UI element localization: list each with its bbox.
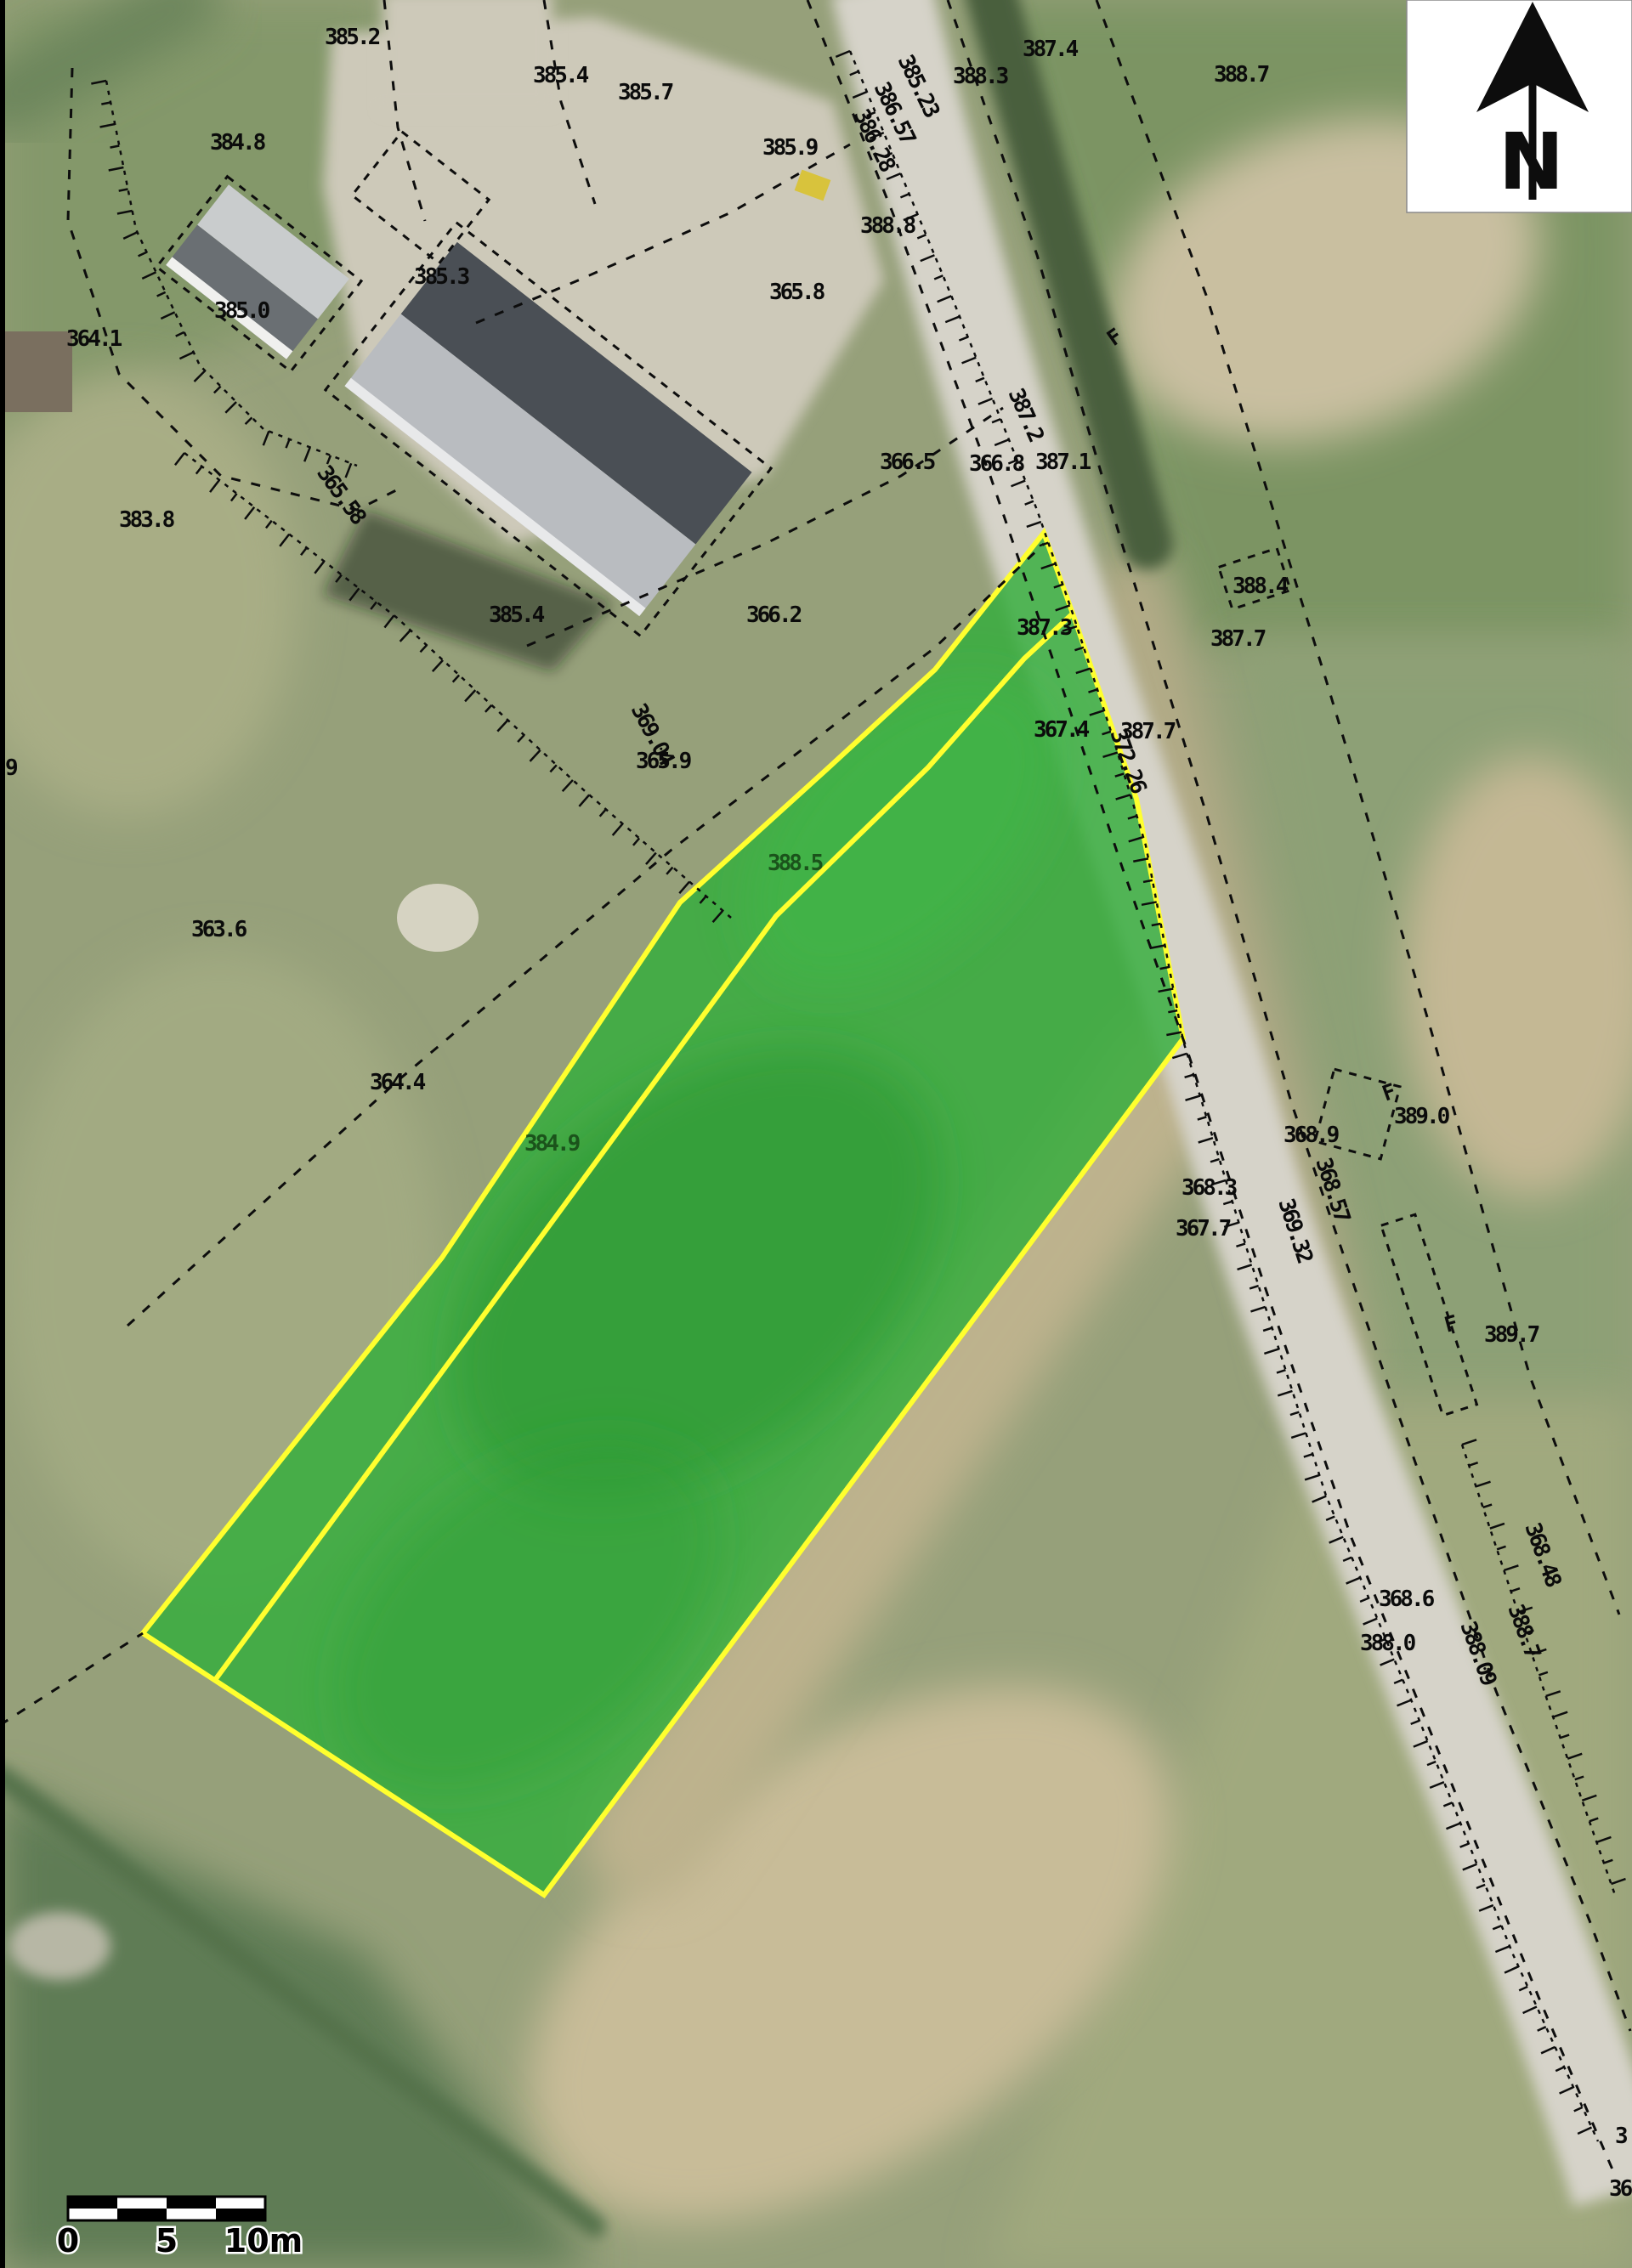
spot-height-label: 385.9	[762, 135, 818, 161]
spot-height-label: 367.7	[1176, 1216, 1231, 1241]
spot-height-label: 388.5	[768, 851, 823, 876]
spot-height-label: 387.7	[1210, 626, 1266, 652]
spot-height-label: 368.6	[1379, 1586, 1435, 1612]
spot-height-label: 366.2	[746, 602, 802, 628]
scale-bar-segment	[216, 2197, 265, 2209]
scale-bar-segment	[117, 2197, 167, 2209]
spot-height-label: 365.8	[769, 280, 825, 305]
scale-bar-label: 0	[57, 2222, 79, 2260]
small-outbuilding	[0, 331, 72, 412]
aerial-survey-map: 385.2385.4385.7384.8385.9388.3387.4388.7…	[0, 0, 1632, 2268]
scale-bar-segment	[68, 2209, 117, 2220]
scale-bar-label: 5	[156, 2222, 178, 2260]
spot-height-label: 389.7	[1484, 1322, 1539, 1348]
spot-height-label: 364.1	[66, 326, 122, 352]
photo-patch	[382, 0, 552, 110]
photo-patch	[8, 1912, 110, 1980]
scale-bar-segment	[216, 2209, 265, 2220]
spot-height-label: 384.8	[210, 130, 266, 156]
spot-height-label: 366.8	[969, 451, 1025, 477]
spot-height-label: 389.0	[1394, 1104, 1450, 1129]
spot-height-label: 9	[5, 755, 17, 781]
spot-height-label: 363.6	[191, 917, 247, 942]
spot-height-label: 388.4	[1232, 574, 1289, 599]
spot-height-label: 385.4	[489, 602, 545, 628]
scale-bar-segment	[68, 2197, 117, 2209]
spot-height-label: 385.3	[414, 264, 469, 290]
spot-height-label: 366.5	[880, 450, 935, 475]
spot-height-label: 364.4	[370, 1070, 426, 1095]
scale-bar-segment	[117, 2209, 167, 2220]
spot-height-label: 36	[1609, 2176, 1632, 2202]
spot-height-label: 387.4	[1023, 37, 1079, 62]
scale-bar-segment	[167, 2197, 216, 2209]
scale-bar-label: 10m	[224, 2222, 303, 2260]
spot-height-label: 368.3	[1181, 1175, 1237, 1201]
spot-height-label: 385.7	[618, 80, 673, 105]
spot-height-label: 383.8	[119, 507, 175, 533]
spot-height-label: 388.3	[953, 64, 1008, 89]
spot-height-label: 388.7	[1214, 62, 1269, 88]
spot-height-label: 367.4	[1034, 717, 1090, 743]
spot-height-label: 385.2	[325, 25, 380, 50]
spot-height-label: 3	[1615, 2124, 1627, 2149]
spot-height-label: 387.3	[1017, 615, 1072, 641]
map-canvas: 385.2385.4385.7384.8385.9388.3387.4388.7…	[0, 0, 1632, 2268]
north-arrow: N	[1407, 0, 1632, 212]
spot-height-label: 385.0	[214, 298, 270, 324]
spot-height-label: 384.9	[524, 1131, 580, 1157]
spot-height-label: 387.1	[1035, 450, 1091, 475]
spot-height-label: 368.9	[1283, 1123, 1339, 1148]
spot-height-label: 388.0	[1360, 1631, 1416, 1656]
spot-height-label: 385.4	[533, 63, 589, 88]
photo-patch	[397, 884, 479, 952]
spot-height-label: 388.8	[860, 213, 916, 239]
scale-bar-segment	[167, 2209, 216, 2220]
map-frame-border	[0, 0, 5, 2268]
